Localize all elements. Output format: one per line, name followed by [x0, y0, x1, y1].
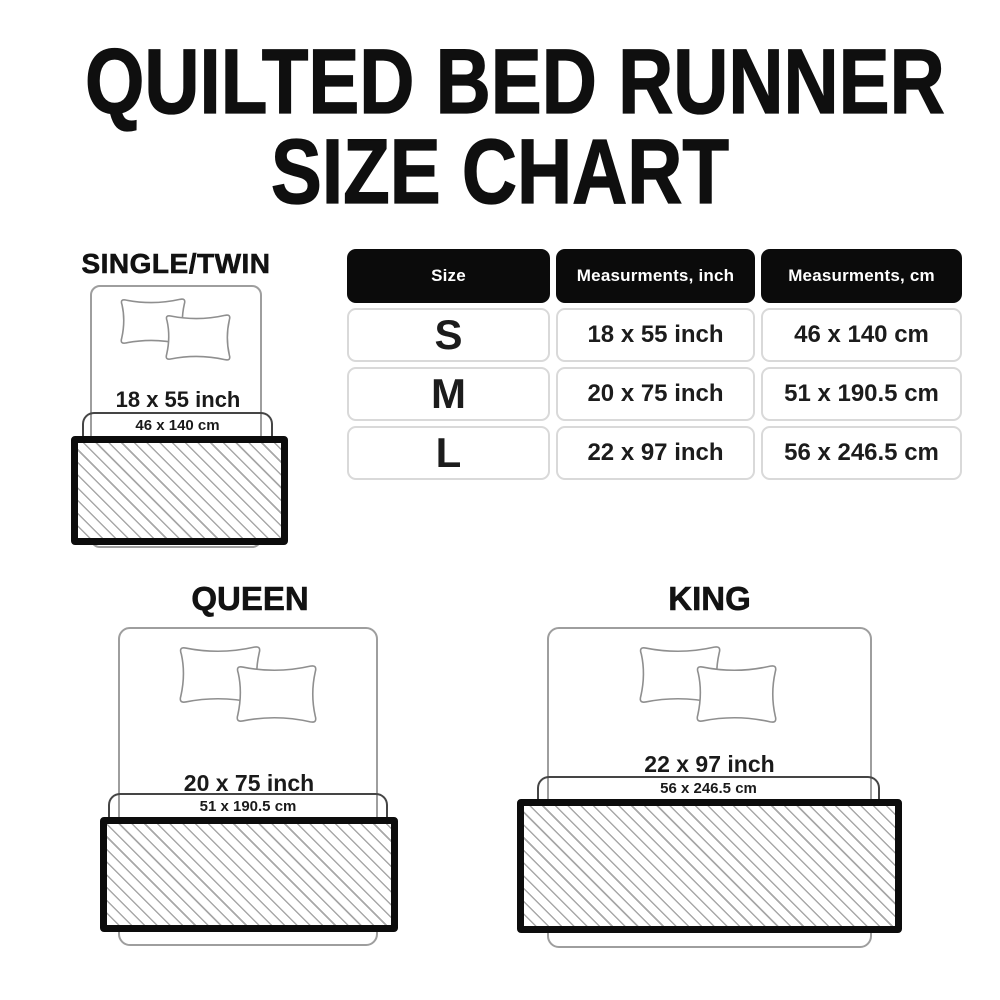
king-cm-measurement: 56 x 246.5 cm — [537, 781, 880, 796]
king-runner-swatch — [517, 799, 902, 933]
row-s-size-label: S — [347, 308, 550, 362]
row-s-cm-value: 46 x 140 cm — [761, 308, 962, 362]
queen-cm-measurement: 51 x 190.5 cm — [108, 799, 388, 814]
pillow-icon — [692, 662, 781, 726]
page-title-line2: SIZE CHART — [85, 126, 915, 218]
king-label: KING — [547, 582, 872, 615]
row-l-size-label: L — [347, 426, 550, 480]
size-table: Size Measurments, inch Measurments, cm S… — [347, 249, 962, 480]
column-header-inch: Measurments, inch — [556, 249, 755, 303]
queen-inch-measurement: 20 x 75 inch — [100, 772, 398, 795]
queen-label: QUEEN — [118, 582, 382, 615]
page-title-line1: QUILTED BED RUNNER — [85, 36, 915, 128]
single-twin-runner-swatch — [71, 436, 288, 545]
single-twin-label: SINGLE/TWIN — [40, 250, 312, 278]
king-inch-measurement: 22 x 97 inch — [517, 753, 902, 776]
row-m-inch-value: 20 x 75 inch — [556, 367, 755, 421]
column-header-size: Size — [347, 249, 550, 303]
single-twin-cm-measurement: 46 x 140 cm — [82, 418, 273, 433]
row-s-inch-value: 18 x 55 inch — [556, 308, 755, 362]
row-m-cm-value: 51 x 190.5 cm — [761, 367, 962, 421]
pillow-icon — [162, 312, 234, 363]
row-m-size-label: M — [347, 367, 550, 421]
single-twin-inch-measurement: 18 x 55 inch — [72, 389, 284, 411]
queen-runner-swatch — [100, 817, 398, 932]
column-header-cm: Measurments, cm — [761, 249, 962, 303]
row-l-cm-value: 56 x 246.5 cm — [761, 426, 962, 480]
pillow-icon — [232, 662, 321, 726]
quilted-bed-runner-size-chart: QUILTED BED RUNNER SIZE CHART Size Measu… — [0, 0, 1000, 1000]
row-l-inch-value: 22 x 97 inch — [556, 426, 755, 480]
